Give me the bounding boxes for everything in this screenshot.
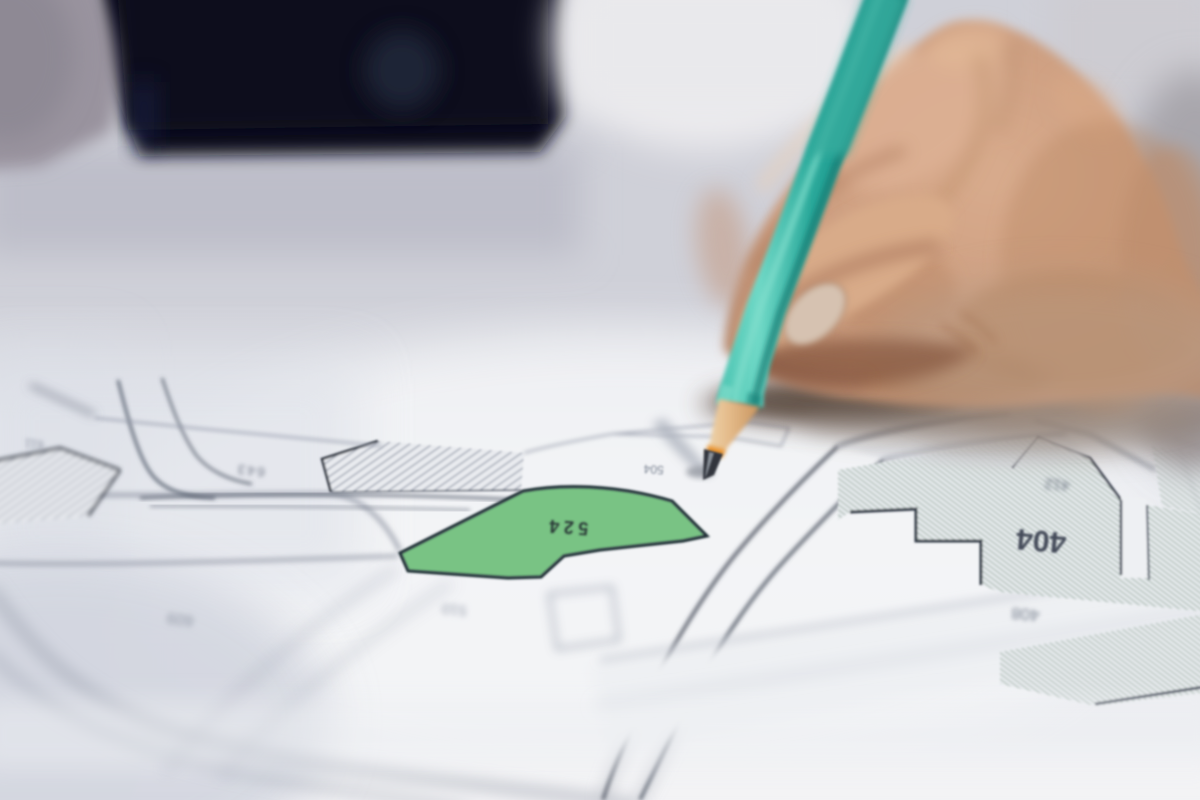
- svg-text:524: 524: [544, 515, 589, 538]
- svg-text:611: 611: [23, 436, 44, 452]
- svg-text:609: 609: [166, 609, 195, 629]
- svg-text:412: 412: [1044, 475, 1070, 494]
- svg-text:504: 504: [643, 462, 664, 477]
- svg-text:408: 408: [1010, 604, 1040, 625]
- svg-text:404: 404: [1014, 522, 1067, 559]
- svg-text:510: 510: [441, 600, 467, 619]
